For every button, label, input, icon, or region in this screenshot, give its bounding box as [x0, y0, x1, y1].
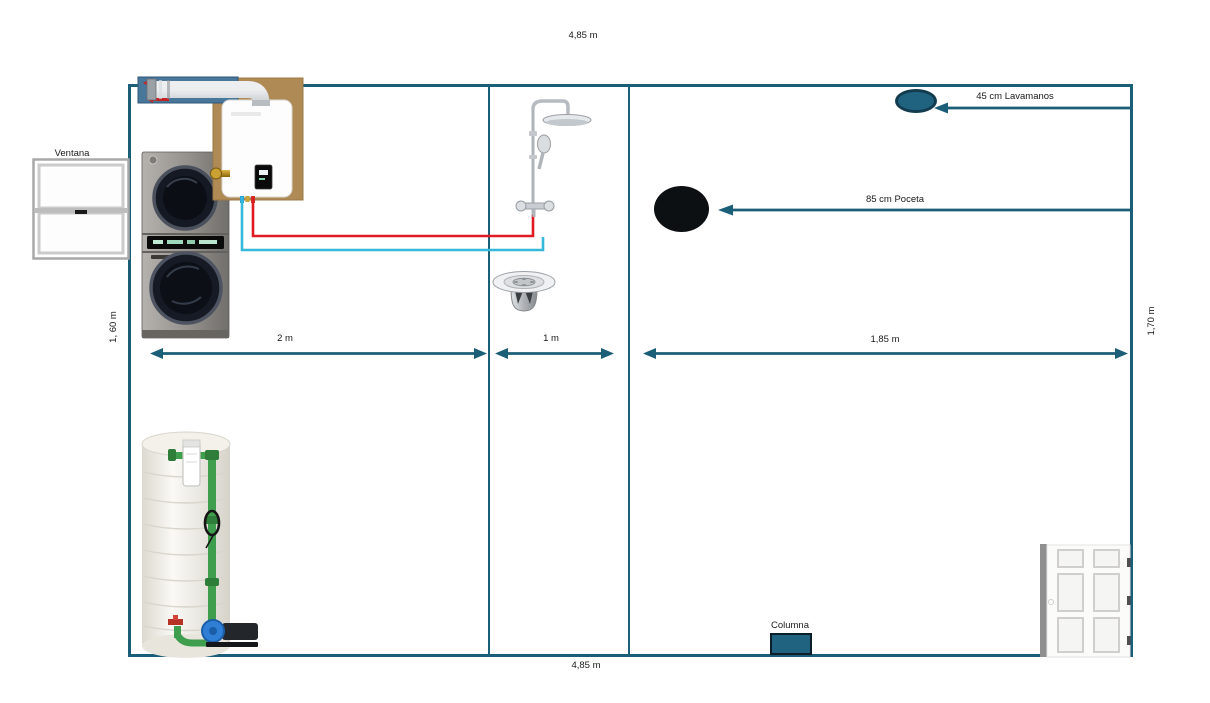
door-hinge — [1127, 596, 1131, 605]
sink-oval-icon — [895, 89, 937, 113]
door-icon — [1040, 544, 1134, 660]
heater-display — [255, 165, 272, 189]
section2-width-label: 1 m — [511, 333, 591, 345]
door-hinge — [1127, 558, 1131, 567]
tank-filter — [183, 440, 200, 486]
water-tank-pump-icon — [134, 428, 264, 664]
section3-width-label: 1,85 m — [845, 334, 925, 346]
wall-divider-2 — [628, 84, 630, 657]
dimension-bottom-label: 4,85 m — [546, 660, 626, 672]
door-knob — [1049, 600, 1054, 605]
section1-width-arrow — [150, 346, 487, 361]
floor-drain-icon — [492, 256, 558, 318]
basin-distance-arrow — [718, 203, 1131, 217]
hand-shower — [538, 135, 551, 153]
dimension-left-label: 1, 60 m — [108, 297, 120, 357]
window-icon — [32, 158, 130, 260]
basin-oval-icon — [654, 186, 709, 232]
dimension-right-label: 1,70 m — [1146, 291, 1158, 351]
shower-column-icon — [503, 93, 595, 233]
column-block-icon — [770, 633, 812, 655]
sink-distance-arrow — [934, 101, 1131, 115]
floor-plan-diagram: 4,85 m 4,85 m 1, 60 m 1,70 m Ventana — [0, 0, 1210, 703]
door-hinge — [1127, 636, 1131, 645]
wall-divider-1 — [488, 84, 490, 657]
section2-width-arrow — [495, 346, 614, 361]
window-latch — [75, 210, 87, 214]
section3-width-arrow — [643, 346, 1128, 361]
section1-width-label: 2 m — [245, 333, 325, 345]
water-heater-icon — [135, 70, 305, 204]
water-pump — [202, 620, 258, 647]
column-label: Columna — [750, 620, 830, 632]
dimension-top-label: 4,85 m — [543, 30, 623, 42]
